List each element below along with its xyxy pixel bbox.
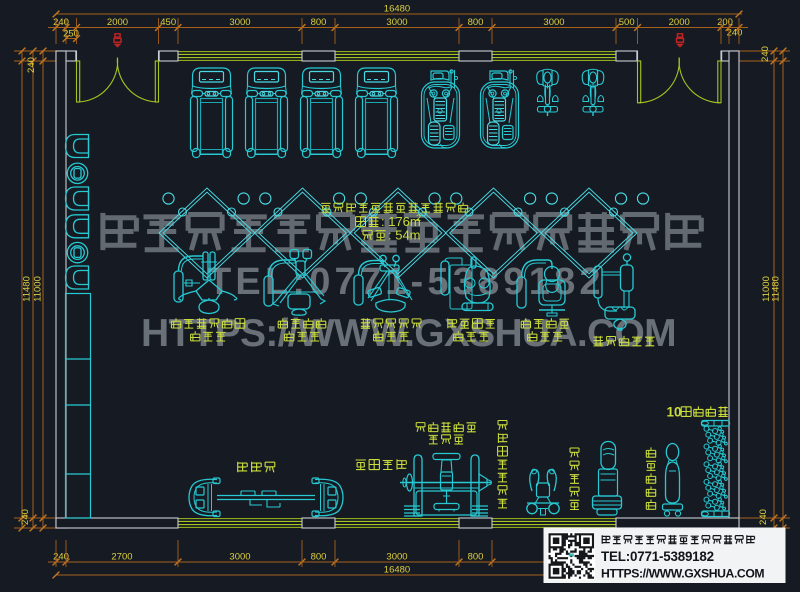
svg-text:800: 800 [311, 552, 327, 563]
svg-text:3000: 3000 [386, 17, 407, 28]
svg-text:250: 250 [63, 29, 79, 40]
svg-text:3000: 3000 [229, 552, 250, 563]
svg-text:800: 800 [468, 552, 484, 563]
svg-text:16480: 16480 [384, 565, 410, 576]
svg-text:TEL:0771-5389182: TEL:0771-5389182 [601, 549, 714, 564]
svg-text:3000: 3000 [386, 552, 407, 563]
svg-text:240: 240 [53, 17, 69, 28]
svg-text:2700: 2700 [111, 552, 132, 563]
svg-text:240: 240 [20, 509, 31, 525]
svg-text:10: 10 [667, 405, 682, 420]
svg-text:11480: 11480 [22, 276, 33, 302]
svg-text:240: 240 [758, 509, 769, 525]
svg-text:240: 240 [26, 57, 37, 73]
svg-text:11480: 11480 [771, 276, 782, 302]
svg-text:: 54m: : 54m [388, 228, 421, 243]
svg-text:2000: 2000 [107, 17, 128, 28]
svg-text:240: 240 [53, 552, 69, 563]
svg-text:800: 800 [311, 17, 327, 28]
svg-text:2000: 2000 [669, 17, 690, 28]
svg-text:240: 240 [760, 46, 771, 62]
svg-text:200: 200 [717, 17, 733, 28]
svg-text:500: 500 [619, 17, 635, 28]
svg-text:800: 800 [468, 17, 484, 28]
svg-text:11000: 11000 [33, 276, 44, 302]
svg-text:2: 2 [416, 213, 421, 223]
svg-text:450: 450 [160, 17, 176, 28]
svg-text:HTTPS://WWW.GXSHUA.COM: HTTPS://WWW.GXSHUA.COM [601, 567, 764, 581]
svg-text:3000: 3000 [543, 17, 564, 28]
svg-text:16480: 16480 [384, 4, 410, 15]
svg-text:3000: 3000 [229, 17, 250, 28]
